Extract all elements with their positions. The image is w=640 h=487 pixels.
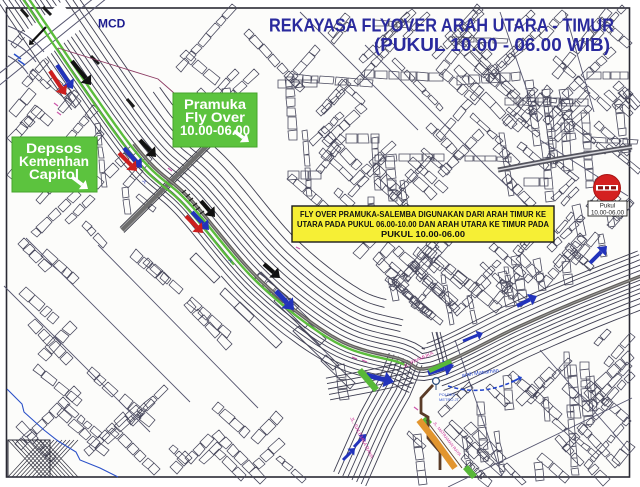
svg-text:Capitol: Capitol [29, 167, 79, 182]
svg-text:Pukul: Pukul [600, 203, 615, 210]
svg-text:REKAYASA FLYOVER ARAH UTARA -: REKAYASA FLYOVER ARAH UTARA - TIMUR [269, 15, 614, 36]
svg-text:MCD: MCD [98, 17, 126, 31]
svg-text:(PUKUL 10.00 - 06.00 WIB): (PUKUL 10.00 - 06.00 WIB) [374, 34, 610, 55]
svg-text:METRO JT: METRO JT [439, 397, 460, 402]
svg-text:10.00-06.00: 10.00-06.00 [591, 210, 625, 217]
svg-text:FLY OVER PRAMUKA-SALEMBA DIGUN: FLY OVER PRAMUKA-SALEMBA DIGUNAKAN DARI … [300, 209, 546, 219]
svg-text:UTARA PADA PUKUL 06.00-10.00 D: UTARA PADA PUKUL 06.00-10.00 DAN ARAH UT… [297, 219, 549, 229]
svg-text:PUKUL 10.00-06.00: PUKUL 10.00-06.00 [381, 229, 465, 239]
